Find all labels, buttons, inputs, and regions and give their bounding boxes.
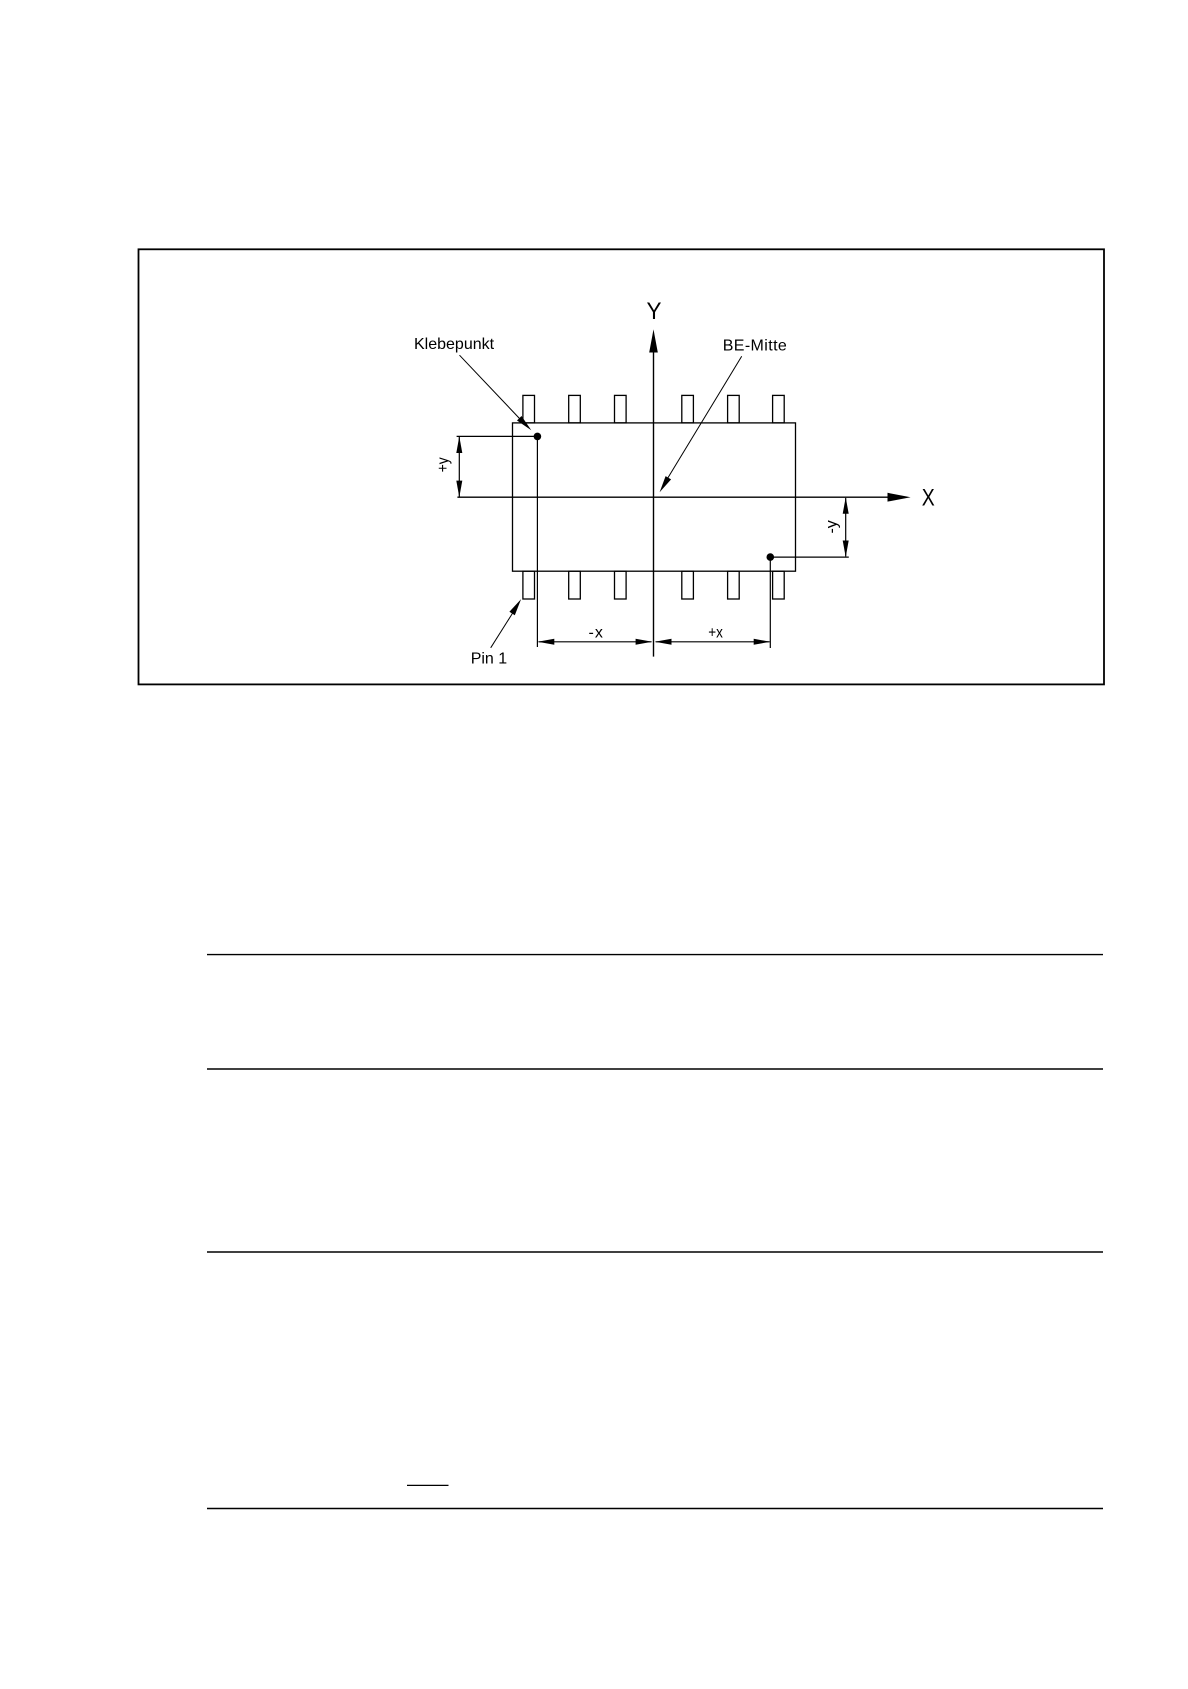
svg-text:-x: -x (589, 625, 604, 642)
svg-text:Pin 1: Pin 1 (471, 651, 508, 668)
svg-text:Y: Y (647, 298, 662, 325)
svg-text:X: X (922, 485, 935, 512)
svg-text:Klebepunkt: Klebepunkt (414, 336, 495, 353)
svg-text:BE-Mitte: BE-Mitte (723, 337, 788, 354)
svg-text:+x: +x (708, 625, 723, 642)
svg-text:+y: +y (435, 457, 452, 472)
svg-text:-y: -y (824, 520, 841, 533)
